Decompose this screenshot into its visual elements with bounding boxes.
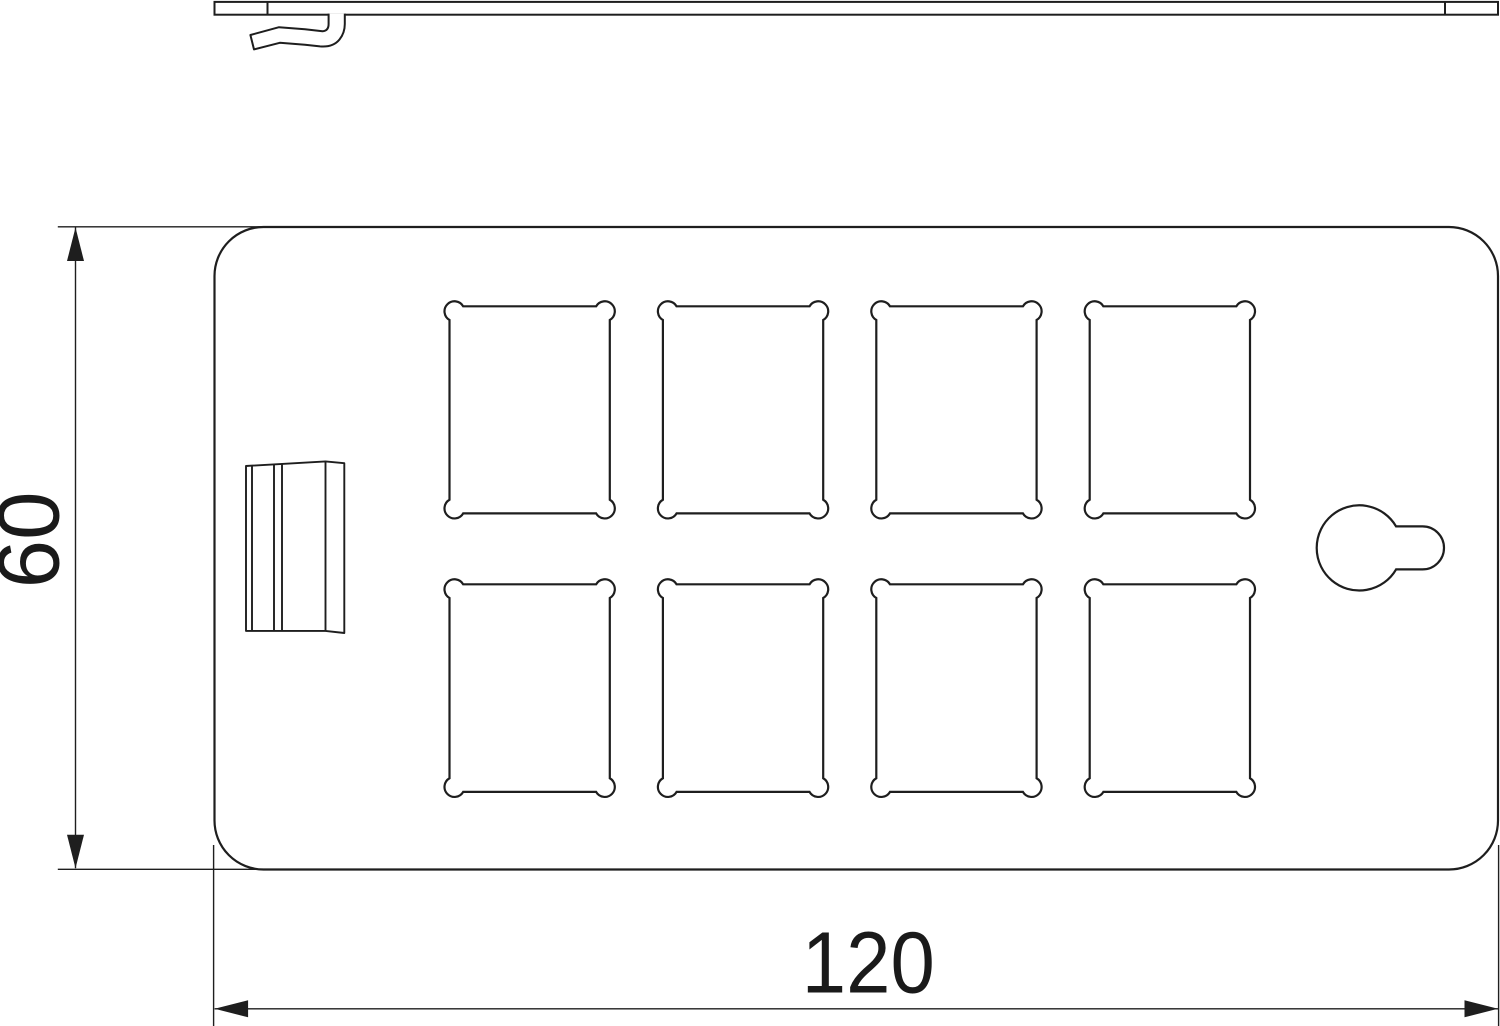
svg-text:120: 120 xyxy=(802,915,935,1012)
svg-text:60: 60 xyxy=(0,492,78,589)
